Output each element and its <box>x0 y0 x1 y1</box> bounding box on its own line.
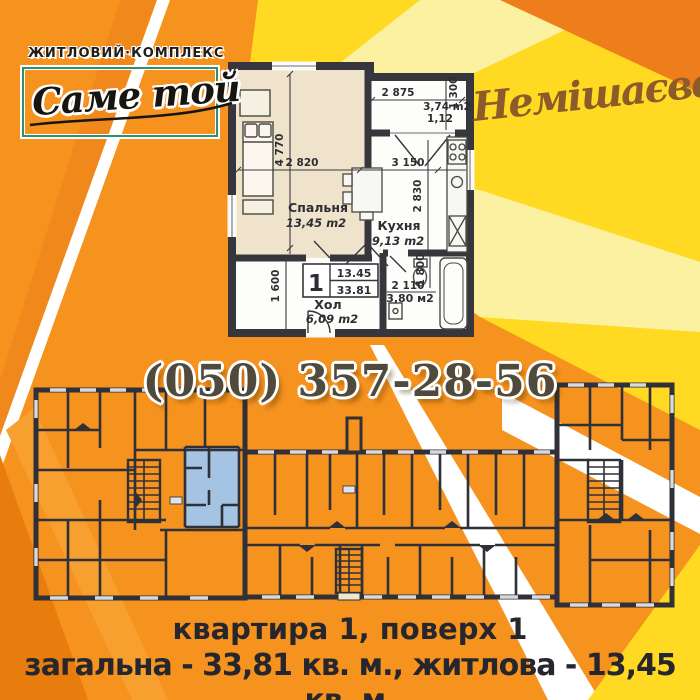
footer-area-info: загальна - 33,81 кв. м., житлова - 13,45… <box>0 648 700 700</box>
hall-area: 6,09 m2 <box>306 312 358 326</box>
balcony-coefficient: 1,12 <box>427 113 453 125</box>
kitchen-label: Кухня <box>377 218 420 233</box>
dim-kitchen-width: 3 150 <box>392 157 425 169</box>
phone-number: (050) 357-28-56 <box>0 356 700 407</box>
hall-label: Хол <box>314 297 341 312</box>
label-plate-left <box>170 497 182 504</box>
dim-hall-depth: 1 600 <box>270 270 282 303</box>
dim-balcony-depth: 1 300 <box>448 77 460 110</box>
label-plate-center <box>343 486 355 493</box>
dim-kitchen-depth: 2 830 <box>412 180 424 213</box>
entrance-door <box>338 593 360 600</box>
vent-shaft <box>347 418 361 452</box>
dresser <box>243 200 273 214</box>
unit-total-area: 33.81 <box>337 284 372 297</box>
dim-bedroom-width: 2 820 <box>286 157 319 169</box>
balcony-area: 3,74 m2 <box>423 101 471 113</box>
bedroom-area: 13,45 m2 <box>286 216 346 230</box>
kitchen-area: 9,13 m2 <box>372 234 424 248</box>
poster: Спальня 13,45 m2 Кухня 9,13 m2 Хол 6,09 … <box>0 0 700 700</box>
complex-label: житловий·комплекс <box>28 46 224 61</box>
dim-bedroom-depth: 4 770 <box>274 134 286 167</box>
brand-underline-flourish <box>24 69 234 135</box>
highlighted-apartment <box>185 447 239 527</box>
apartment-floor-plan: Спальня 13,45 m2 Кухня 9,13 m2 Хол 6,09 … <box>232 66 471 333</box>
dim-bathroom-depth: 1 800 <box>415 254 427 287</box>
unit-number: 1 <box>308 271 324 297</box>
bathroom-area: 3,80 м2 <box>386 292 434 305</box>
unit-living-area: 13.45 <box>337 267 372 280</box>
wardrobe <box>240 90 270 116</box>
bedroom-label: Спальня <box>288 200 348 215</box>
bed <box>243 122 273 196</box>
brand-logo-box: Саме той <box>22 67 218 137</box>
footer-apartment-info: квартира 1, поверх 1 <box>0 612 700 646</box>
dim-balcony-width: 2 875 <box>382 87 415 99</box>
